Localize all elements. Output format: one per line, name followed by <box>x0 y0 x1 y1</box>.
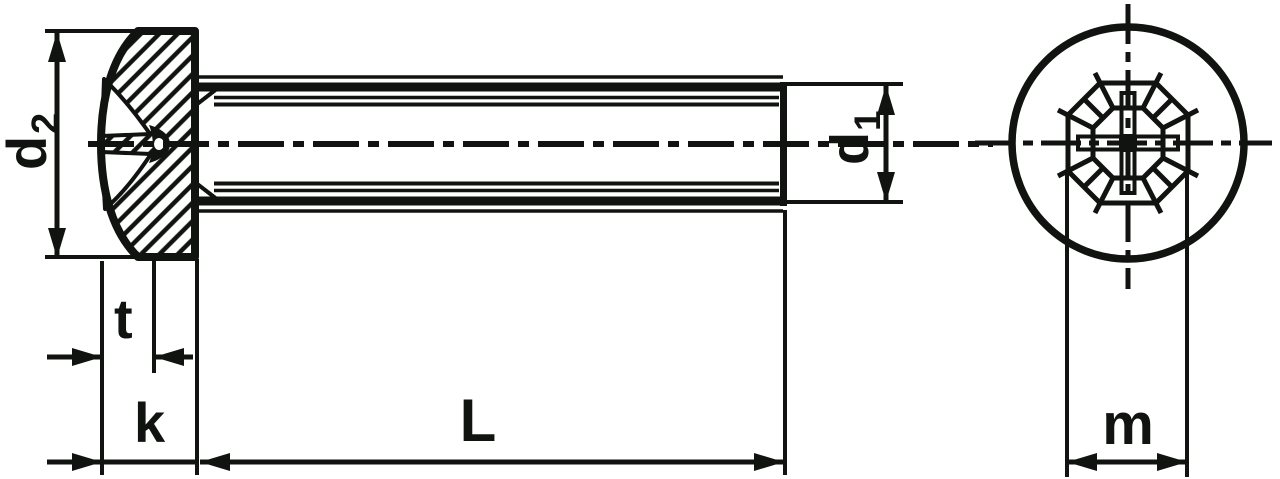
label-t: t <box>114 287 133 350</box>
arrowhead <box>754 453 784 471</box>
screw-dimension-diagram: d 2 d 1 t <box>0 0 1280 479</box>
label-L: L <box>460 387 497 454</box>
arrowhead <box>72 453 102 471</box>
arrowhead <box>877 172 895 202</box>
label-d1: d 1 <box>820 110 888 165</box>
label-d1-sub: 1 <box>847 110 888 131</box>
label-d2-base: d <box>0 136 58 170</box>
dimension-t: t <box>47 261 193 373</box>
arrowhead <box>48 228 66 258</box>
screw-end-view: m <box>975 4 1272 477</box>
recess-core-hole <box>154 138 164 150</box>
label-k: k <box>134 391 166 454</box>
arrowhead <box>154 348 184 366</box>
label-d1-base: d <box>820 132 880 165</box>
screw-side-view: d 2 d 1 t <box>0 25 993 475</box>
arrowhead <box>48 32 66 62</box>
arrowhead <box>1157 453 1187 471</box>
arrowhead <box>72 348 102 366</box>
arrowhead <box>200 453 230 471</box>
dimension-L: L <box>200 210 785 475</box>
arrowhead <box>1067 453 1097 471</box>
label-m: m <box>1102 392 1154 457</box>
label-d2: d 2 <box>0 113 67 170</box>
technical-drawing: d 2 d 1 t <box>0 0 1280 479</box>
label-d2-sub: 2 <box>25 113 67 134</box>
